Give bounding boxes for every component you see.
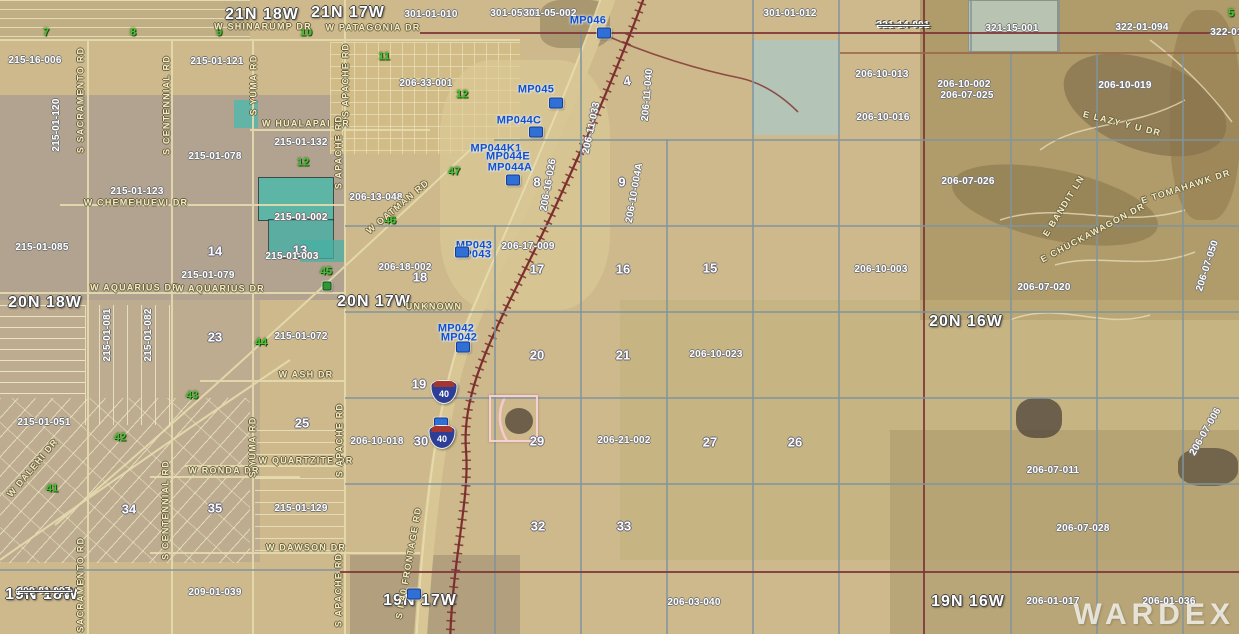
road-name-label: S SACRAMENTO RD bbox=[77, 537, 86, 634]
grid-line-horizontal bbox=[0, 569, 340, 571]
road-name-label: S YUMA RD bbox=[249, 417, 258, 478]
township-label: 21N 17W bbox=[311, 5, 385, 21]
parcel-id-label: 206-10-013 bbox=[855, 70, 908, 80]
interstate-40-shield-icon: 40 bbox=[429, 425, 456, 449]
parcel-id-label: 215-01-085 bbox=[15, 243, 68, 253]
section-number-label: 32 bbox=[531, 520, 545, 533]
township-label: 19N 16W bbox=[931, 594, 1005, 610]
parcel-id-label: 206-10-003 bbox=[854, 265, 907, 275]
grid-line-horizontal bbox=[494, 139, 1239, 141]
grid-line-vertical bbox=[838, 0, 840, 634]
survey-section-number: 11 bbox=[378, 52, 390, 63]
parcel-id-label: 215-01-078 bbox=[188, 152, 241, 162]
road-name-label: W AQUARIUS DR bbox=[90, 284, 180, 293]
wardex-watermark: WARDEX bbox=[1073, 598, 1235, 632]
terrain-plains-mid bbox=[620, 300, 1239, 560]
road-name-label: E BANDIT LN bbox=[1042, 174, 1087, 238]
section-number-label: 8 bbox=[533, 176, 540, 189]
section-number-label: 21 bbox=[616, 349, 630, 362]
section-number-label: 35 bbox=[208, 502, 222, 515]
milepost-marker-icon[interactable] bbox=[549, 98, 563, 109]
township-label: 20N 16W bbox=[929, 314, 1003, 330]
interstate-40-shield-icon: 40 bbox=[431, 380, 458, 404]
terrain-mountain-blob1 bbox=[1050, 34, 1239, 177]
section-number-label: 27 bbox=[703, 436, 717, 449]
parcel-id-label: 206-07-050 bbox=[1195, 239, 1221, 293]
milepost-marker-icon[interactable] bbox=[597, 28, 611, 39]
grid-line-horizontal bbox=[840, 52, 1239, 54]
grid-line-vertical bbox=[1058, 0, 1060, 52]
grid-line-vertical bbox=[666, 139, 668, 634]
section-number-label: 33 bbox=[617, 520, 631, 533]
section-number-label: 14 bbox=[208, 245, 222, 258]
shield-red-band bbox=[434, 381, 455, 387]
strips-left-b bbox=[85, 305, 180, 425]
road-name-label: S APACHE RD bbox=[335, 553, 344, 627]
road-name-label: E TOMAHAWK DR bbox=[1140, 168, 1232, 205]
grid-line-vertical bbox=[1182, 52, 1184, 634]
parcel-id-label: 215-01-121 bbox=[190, 57, 243, 67]
parcel-id-label: 206-10-023 bbox=[689, 350, 742, 360]
grid-line-vertical bbox=[923, 0, 925, 634]
section-number-label: 15 bbox=[703, 262, 717, 275]
survey-section-number: 44 bbox=[255, 338, 267, 349]
road-name-label: S YUMA RD bbox=[250, 55, 259, 116]
grid-line-horizontal bbox=[345, 397, 1239, 399]
strips-left-a bbox=[0, 305, 85, 397]
township-label: 20N 17W bbox=[337, 294, 411, 310]
parcel-id-label: 206-10-019 bbox=[1098, 81, 1151, 91]
parcel-id-label: 206-07-011 bbox=[1027, 466, 1080, 476]
strips-center-bottom bbox=[255, 430, 345, 560]
grid-line-horizontal bbox=[340, 571, 1239, 573]
road-name-label: S APACHE RD bbox=[336, 403, 345, 477]
parcel-id-label: 206-17-009 bbox=[501, 242, 554, 252]
milepost-label: MP044A bbox=[488, 163, 533, 174]
section-number-label: 25 bbox=[295, 417, 309, 430]
road-name-label: W DAWSON DR bbox=[266, 544, 346, 553]
terrain-goldenvalley-grid bbox=[330, 42, 520, 154]
parcel-map-canvas[interactable]: 21N 18W21N 17W20N 18W20N 17W20N 16W19N 1… bbox=[0, 0, 1239, 634]
milepost-label: MP045 bbox=[518, 85, 554, 96]
parcel-id-label: 206-10-016 bbox=[856, 113, 909, 123]
road-name-label: W PATAGONIA DR bbox=[326, 24, 421, 33]
parcel-id-label: 206-10-018 bbox=[350, 437, 403, 447]
parcel-id-label: 206-07-028 bbox=[1056, 524, 1109, 534]
road-name-label: S APACHE RD bbox=[342, 43, 351, 117]
parcel-id-label: 206-11-033 bbox=[582, 101, 603, 155]
road-name-label: E LAZY Y U DR bbox=[1082, 110, 1162, 138]
survey-section-number: 42 bbox=[114, 433, 126, 444]
parcel-id-label: 215-01-129 bbox=[274, 504, 327, 514]
terrain-mountains-right bbox=[920, 0, 1239, 320]
shield-red-band bbox=[432, 426, 453, 432]
milepost-marker-icon[interactable] bbox=[529, 127, 543, 138]
shield-route-number: 40 bbox=[429, 434, 456, 444]
road-name-label: W AQUARIUS DR bbox=[175, 285, 265, 294]
parcel-id-label: 215-01-132 bbox=[274, 138, 327, 148]
section-number-label: 29 bbox=[530, 435, 544, 448]
township-label: 20N 18W bbox=[8, 295, 82, 311]
parcel-id-label: 206-07-026 bbox=[941, 177, 994, 187]
survey-section-number: 41 bbox=[46, 484, 58, 495]
parcel-id-label: 209-01-039 bbox=[188, 588, 241, 598]
parcel-id-label: 215-01-120 bbox=[52, 98, 62, 151]
roads-and-railroad-layer bbox=[0, 0, 1239, 634]
parcel-id-label: 215-01-081 bbox=[103, 308, 113, 361]
section-number-label: 4 bbox=[622, 74, 631, 88]
road-name-label: W SHINARUMP DR bbox=[214, 23, 312, 32]
grid-line-horizontal bbox=[345, 483, 1239, 485]
dark-spot-right2 bbox=[1178, 448, 1238, 486]
parcel-id-label: 215-01-079 bbox=[181, 271, 234, 281]
parcel-id-label: 206-07-025 bbox=[940, 91, 993, 101]
parcel-id-label: 206-10-002 bbox=[937, 80, 990, 90]
parcel-id-label: 206-07-020 bbox=[1017, 283, 1070, 293]
parcel-id-label: 215-16-006 bbox=[8, 56, 61, 66]
road-name-label: W OATMAN RD bbox=[365, 178, 431, 235]
grid-line-horizontal bbox=[345, 311, 1239, 313]
grid-line-vertical bbox=[1096, 52, 1098, 634]
survey-section-number: 47 bbox=[448, 167, 460, 178]
parcel-id-label: 206-10-004A bbox=[625, 162, 645, 223]
grid-line-vertical bbox=[752, 0, 754, 634]
section-number-label: 34 bbox=[122, 503, 136, 516]
shield-route-number: 40 bbox=[431, 389, 458, 399]
parcel-id-label: 322-01-094 bbox=[1115, 23, 1168, 33]
parcel-id-label: 321-15-001 bbox=[985, 24, 1038, 34]
section-number-label: 16 bbox=[616, 263, 630, 276]
parcel-id-label: 301-05-002 bbox=[523, 9, 576, 19]
milepost-marker-icon[interactable] bbox=[506, 175, 520, 186]
section-number-label: 19 bbox=[412, 378, 426, 391]
road-name-label: W CHEMEHUEVI DR bbox=[84, 199, 189, 208]
parcel-id-label: 215-01-051 bbox=[17, 418, 70, 428]
road-name-label: S CENTENNIAL RD bbox=[163, 55, 172, 155]
parcel-id-label: 206-11-040 bbox=[641, 68, 656, 121]
road-name-label: S CENTENNIAL RD bbox=[162, 460, 171, 560]
grid-line-vertical bbox=[1010, 52, 1012, 634]
milepost-marker-icon[interactable] bbox=[455, 247, 469, 258]
section-number-label: 23 bbox=[208, 331, 222, 344]
parcel-id-label: 206-21-002 bbox=[597, 436, 650, 446]
parcel-id-label: 215-01-003 bbox=[265, 252, 318, 262]
road-name-label: S SACRAMENTO RD bbox=[77, 47, 86, 153]
survey-section-number: 12 bbox=[456, 90, 468, 101]
section-number-label: 30 bbox=[414, 435, 428, 448]
milepost-marker-icon[interactable] bbox=[407, 589, 421, 600]
terrain-topleft-rows bbox=[0, 0, 250, 40]
section-number-label: 9 bbox=[618, 176, 625, 189]
road-name-label: S APACHE RD bbox=[335, 115, 344, 189]
parcel-id-label: 215-01-072 bbox=[274, 332, 327, 342]
green-survey-marker-icon[interactable] bbox=[323, 282, 332, 291]
grid-line-vertical bbox=[970, 0, 972, 52]
survey-section-number: 12 bbox=[297, 158, 309, 169]
survey-section-number: 43 bbox=[186, 391, 198, 402]
parcel-id-label: 321-14-001 bbox=[876, 21, 929, 31]
survey-section-number: 45 bbox=[320, 267, 332, 278]
parcel-id-label: 206-33-001 bbox=[399, 79, 452, 89]
parcel-id-label: 206-18-002 bbox=[378, 263, 431, 273]
survey-section-number: 8 bbox=[130, 28, 136, 39]
road-name-label: UNKNOWN bbox=[406, 303, 462, 312]
section-number-label: 17 bbox=[530, 263, 544, 276]
parcel-id-label: 215-01-123 bbox=[110, 187, 163, 197]
parcel-id-label: 206-07-006 bbox=[1188, 406, 1223, 457]
section-number-label: 26 bbox=[788, 436, 802, 449]
parcel-id-label: 215-01-002 bbox=[274, 213, 327, 223]
parcel-id-label: 301-01-010 bbox=[404, 10, 457, 20]
milepost-marker-icon[interactable] bbox=[456, 342, 470, 353]
parcel-id-label: 206-01-017 bbox=[1026, 597, 1079, 607]
grid-line-vertical bbox=[580, 30, 582, 634]
survey-section-number: 7 bbox=[43, 28, 49, 39]
parcel-id-label: 209-01-097 bbox=[17, 587, 70, 597]
road-name-label: W ASH DR bbox=[279, 371, 334, 380]
parcel-id-label: 301-01-012 bbox=[763, 9, 816, 19]
teal-parcel-topcenter bbox=[752, 40, 840, 135]
section-number-label: 20 bbox=[530, 349, 544, 362]
parcel-id-label: 206-03-040 bbox=[667, 598, 720, 608]
dark-spot-right1 bbox=[1016, 398, 1062, 438]
survey-section-number: 5 bbox=[1228, 9, 1234, 20]
parcel-id-label: 206-16-026 bbox=[539, 158, 558, 212]
milepost-label: MP046 bbox=[570, 16, 606, 27]
parcel-id-label: 215-01-082 bbox=[144, 308, 154, 361]
parcel-id-label: 322-01-09 bbox=[1210, 28, 1239, 38]
milepost-label: MP044C bbox=[497, 116, 542, 127]
